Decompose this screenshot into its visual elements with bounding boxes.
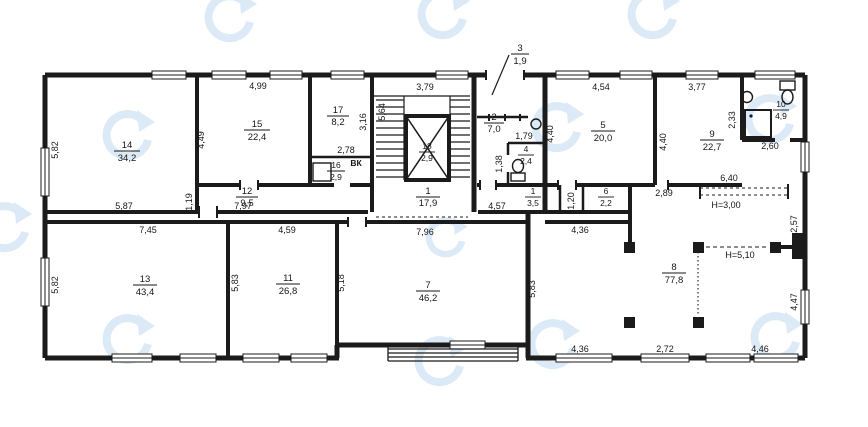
dim: 4,36 [571, 344, 589, 354]
room-label-3: 3 1,9 [511, 43, 529, 67]
room-area: 3,5 [527, 198, 539, 208]
room-area: 26,8 [279, 286, 298, 297]
dim-top: 3,79 [416, 82, 434, 92]
dim: 7,97 [234, 201, 252, 211]
watermark-icon [749, 94, 797, 140]
room-label-9: 9 22,7 [700, 129, 724, 153]
room-area: 34,2 [118, 153, 137, 164]
window [436, 71, 468, 79]
room-label-8: 8 77,8 [662, 262, 686, 286]
window [41, 148, 49, 196]
dim: 1,19 [184, 193, 194, 211]
watermark-icon [422, 0, 470, 35]
room-area: 2,9 [330, 172, 342, 182]
room-area: 46,2 [419, 293, 438, 304]
h300-dashes [700, 188, 788, 195]
window [801, 142, 809, 172]
room-number: 6 [604, 186, 609, 196]
dim: 2,89 [655, 188, 673, 198]
watermark-icon [0, 202, 32, 248]
vk-label: ВК [350, 158, 362, 168]
window [641, 354, 689, 362]
window [243, 354, 279, 362]
column [693, 242, 704, 253]
duct-closet [313, 163, 331, 181]
dim: 4,57 [488, 201, 506, 211]
room-number: 1 [425, 186, 430, 197]
column [770, 242, 781, 253]
walls [45, 70, 805, 358]
column [624, 317, 635, 328]
dim: 2,60 [761, 141, 779, 151]
dim: 4,40 [545, 125, 555, 143]
room-area: 2,2 [600, 198, 612, 208]
window [556, 354, 612, 362]
room-label-2: 2 7,0 [484, 112, 504, 135]
dim-top: 4,54 [592, 82, 610, 92]
h300-label: H=3,00 [711, 200, 740, 210]
room-area: 2,9 [421, 153, 433, 163]
column [693, 317, 704, 328]
h510-label: H=5,10 [725, 250, 754, 260]
window [620, 71, 652, 79]
leader-line [492, 55, 509, 95]
room-number: 3 [517, 43, 522, 54]
room-area: 22,4 [248, 132, 267, 143]
dim-left: 5,82 [50, 141, 60, 159]
watermark-icon [107, 314, 155, 360]
room-label-1b: 1 3,5 [525, 186, 541, 208]
dim: 5,83 [527, 280, 537, 298]
window [686, 71, 718, 79]
dim: 4,59 [278, 225, 296, 235]
room-label-4: 4 2,4 [518, 144, 534, 166]
watermark-icon [632, 0, 680, 35]
window [212, 71, 246, 79]
room-number: 9 [709, 129, 714, 140]
dim: 2,72 [656, 344, 674, 354]
dim-top: 4,99 [249, 81, 267, 91]
window [41, 258, 49, 306]
window [450, 341, 485, 349]
room-number: 4 [524, 144, 529, 154]
dim: 5,64 [377, 103, 387, 121]
floorplan-sheet: 14 34,2 15 22,4 17 8,2 16 2,9 12 9,5 1 1… [0, 0, 868, 427]
dim: 1,38 [494, 155, 504, 173]
floorplan-drawing: 14 34,2 15 22,4 17 8,2 16 2,9 12 9,5 1 1… [0, 0, 868, 427]
window [755, 71, 795, 79]
room-number: 14 [122, 140, 133, 151]
room-label-1: 1 17,9 [416, 186, 440, 209]
window [801, 290, 809, 324]
window [291, 354, 327, 362]
room-number: 11 [283, 273, 293, 284]
room-label-15: 15 22,4 [244, 119, 270, 143]
dim: 6,40 [720, 173, 738, 183]
window [112, 354, 152, 362]
column [624, 242, 635, 253]
room-area: 1,9 [513, 56, 526, 67]
room-area: 22,7 [703, 142, 722, 153]
room-area: 7,0 [487, 124, 500, 135]
room-number: 5 [600, 120, 605, 131]
room-number: 16 [331, 160, 341, 170]
room-area: 20,0 [594, 133, 613, 144]
wall-pier [792, 233, 805, 259]
dim: 5,87 [115, 201, 133, 211]
room-label-5: 5 20,0 [591, 120, 615, 144]
watermark-icon [209, 0, 257, 38]
room-number: 15 [252, 119, 263, 130]
dim: 4,46 [751, 344, 769, 354]
room-number: 10 [776, 99, 786, 109]
room-area: 77,8 [665, 275, 684, 286]
window [180, 354, 216, 362]
dim: 5,18 [336, 274, 346, 292]
dim: 2,33 [727, 111, 737, 129]
dim: 4,40 [658, 133, 668, 151]
room-area: 43,4 [136, 287, 155, 298]
room-label-6: 6 2,2 [598, 186, 614, 208]
dim: 2,78 [337, 145, 355, 155]
dim: 4,49 [196, 131, 206, 149]
room-area: 17,9 [419, 198, 438, 209]
room-number: 1 [531, 186, 536, 196]
dim: 1,20 [566, 192, 576, 210]
room-number: 12 [242, 186, 253, 197]
dim-top: 3,77 [688, 82, 706, 92]
window [556, 71, 589, 79]
room-number: 18 [422, 141, 432, 151]
room-area: 4,9 [775, 111, 787, 121]
room-area: 2,4 [520, 156, 532, 166]
dim: 7,45 [139, 225, 157, 235]
dim: 4,47 [789, 293, 799, 311]
dim: 3,16 [358, 113, 368, 131]
room-number: 7 [425, 280, 430, 291]
window [270, 71, 302, 79]
window [754, 354, 798, 362]
room-number: 13 [140, 274, 151, 285]
watermark-layer [0, 0, 803, 382]
room-label-7: 7 46,2 [416, 280, 440, 304]
dim: 5,83 [230, 274, 240, 292]
dim-left: 5,82 [50, 276, 60, 294]
dim: 4,36 [571, 225, 589, 235]
room-number: 2 [491, 112, 496, 123]
dim: 1,79 [515, 131, 533, 141]
window [706, 354, 750, 362]
dim: 7,96 [416, 227, 434, 237]
window [152, 71, 186, 79]
room-label-13: 13 43,4 [133, 274, 157, 298]
dim: 2,57 [789, 215, 799, 233]
window [331, 71, 364, 79]
room-label-17: 17 8,2 [327, 105, 349, 128]
room-label-11: 11 26,8 [276, 273, 300, 297]
room-number: 8 [671, 262, 676, 273]
room-number: 17 [333, 105, 344, 116]
room-area: 8,2 [331, 117, 344, 128]
